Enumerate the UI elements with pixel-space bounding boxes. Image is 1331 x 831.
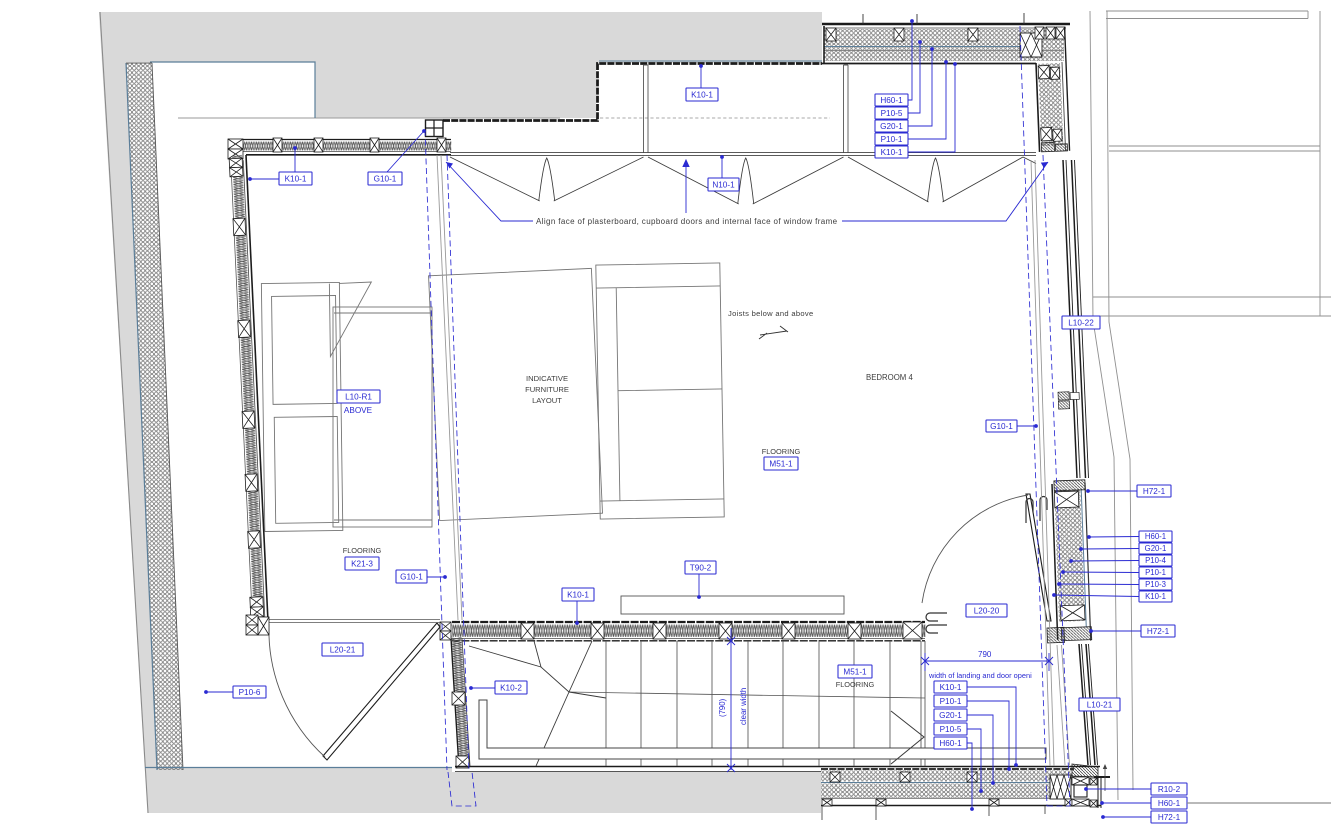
svg-text:R10-2: R10-2: [1158, 785, 1181, 794]
svg-text:ABOVE: ABOVE: [344, 406, 373, 415]
svg-text:Joists below and above: Joists below and above: [728, 309, 814, 318]
svg-text:G20-1: G20-1: [880, 122, 903, 131]
svg-text:Align face of plasterboard, cu: Align face of plasterboard, cupboard doo…: [536, 217, 838, 226]
svg-text:FURNITURE: FURNITURE: [525, 385, 569, 394]
svg-text:N10-1: N10-1: [712, 180, 735, 189]
svg-text:P10-3: P10-3: [1145, 580, 1166, 589]
svg-text:H60-1: H60-1: [939, 739, 962, 748]
svg-text:K10-1: K10-1: [285, 174, 307, 183]
svg-text:P10-1: P10-1: [940, 697, 962, 706]
svg-text:G20-1: G20-1: [939, 711, 962, 720]
svg-text:INDICATIVE: INDICATIVE: [526, 374, 568, 383]
svg-text:G10-1: G10-1: [374, 174, 397, 183]
svg-text:L20-20: L20-20: [974, 606, 1000, 615]
svg-text:K10-1: K10-1: [567, 590, 589, 599]
svg-text:width of landing and door open: width of landing and door openi: [928, 671, 1032, 680]
svg-text:H60-1: H60-1: [1158, 799, 1181, 808]
svg-text:G20-1: G20-1: [1145, 544, 1167, 553]
svg-text:G10-1: G10-1: [990, 422, 1013, 431]
svg-text:K10-1: K10-1: [691, 90, 713, 99]
svg-text:P10-5: P10-5: [881, 109, 903, 118]
svg-text:K10-1: K10-1: [881, 148, 903, 157]
svg-text:H72-1: H72-1: [1143, 487, 1166, 496]
svg-text:H60-1: H60-1: [1145, 532, 1166, 541]
svg-text:K10-2: K10-2: [500, 683, 522, 692]
svg-text:M51-1: M51-1: [843, 667, 867, 676]
svg-text:790: 790: [978, 650, 992, 659]
svg-text:L10-22: L10-22: [1068, 318, 1094, 327]
svg-text:H60-1: H60-1: [880, 96, 903, 105]
svg-text:P10-6: P10-6: [239, 688, 261, 697]
svg-text:K21-3: K21-3: [351, 559, 373, 568]
svg-text:P10-1: P10-1: [1145, 568, 1166, 577]
svg-text:P10-5: P10-5: [940, 725, 962, 734]
svg-text:P10-1: P10-1: [881, 135, 903, 144]
svg-text:T90-2: T90-2: [690, 563, 712, 572]
svg-text:G10-1: G10-1: [400, 572, 423, 581]
svg-text:K10-1: K10-1: [1145, 592, 1166, 601]
svg-text:(790): (790): [718, 698, 727, 717]
svg-text:H72-1: H72-1: [1158, 813, 1181, 822]
svg-text:L10-R1: L10-R1: [345, 392, 372, 401]
svg-text:L20-21: L20-21: [330, 645, 356, 654]
svg-text:M51-1: M51-1: [769, 459, 793, 468]
svg-text:K10-1: K10-1: [940, 683, 962, 692]
svg-text:FLOORING: FLOORING: [762, 447, 801, 456]
svg-text:FLOORING: FLOORING: [343, 546, 382, 555]
svg-text:L10-21: L10-21: [1087, 700, 1113, 709]
svg-text:LAYOUT: LAYOUT: [532, 396, 562, 405]
svg-text:FLOORING: FLOORING: [836, 680, 875, 689]
svg-text:BEDROOM 4: BEDROOM 4: [866, 373, 913, 382]
svg-text:clear width: clear width: [739, 688, 748, 725]
svg-text:H72-1: H72-1: [1147, 627, 1170, 636]
svg-text:P10-4: P10-4: [1145, 556, 1166, 565]
